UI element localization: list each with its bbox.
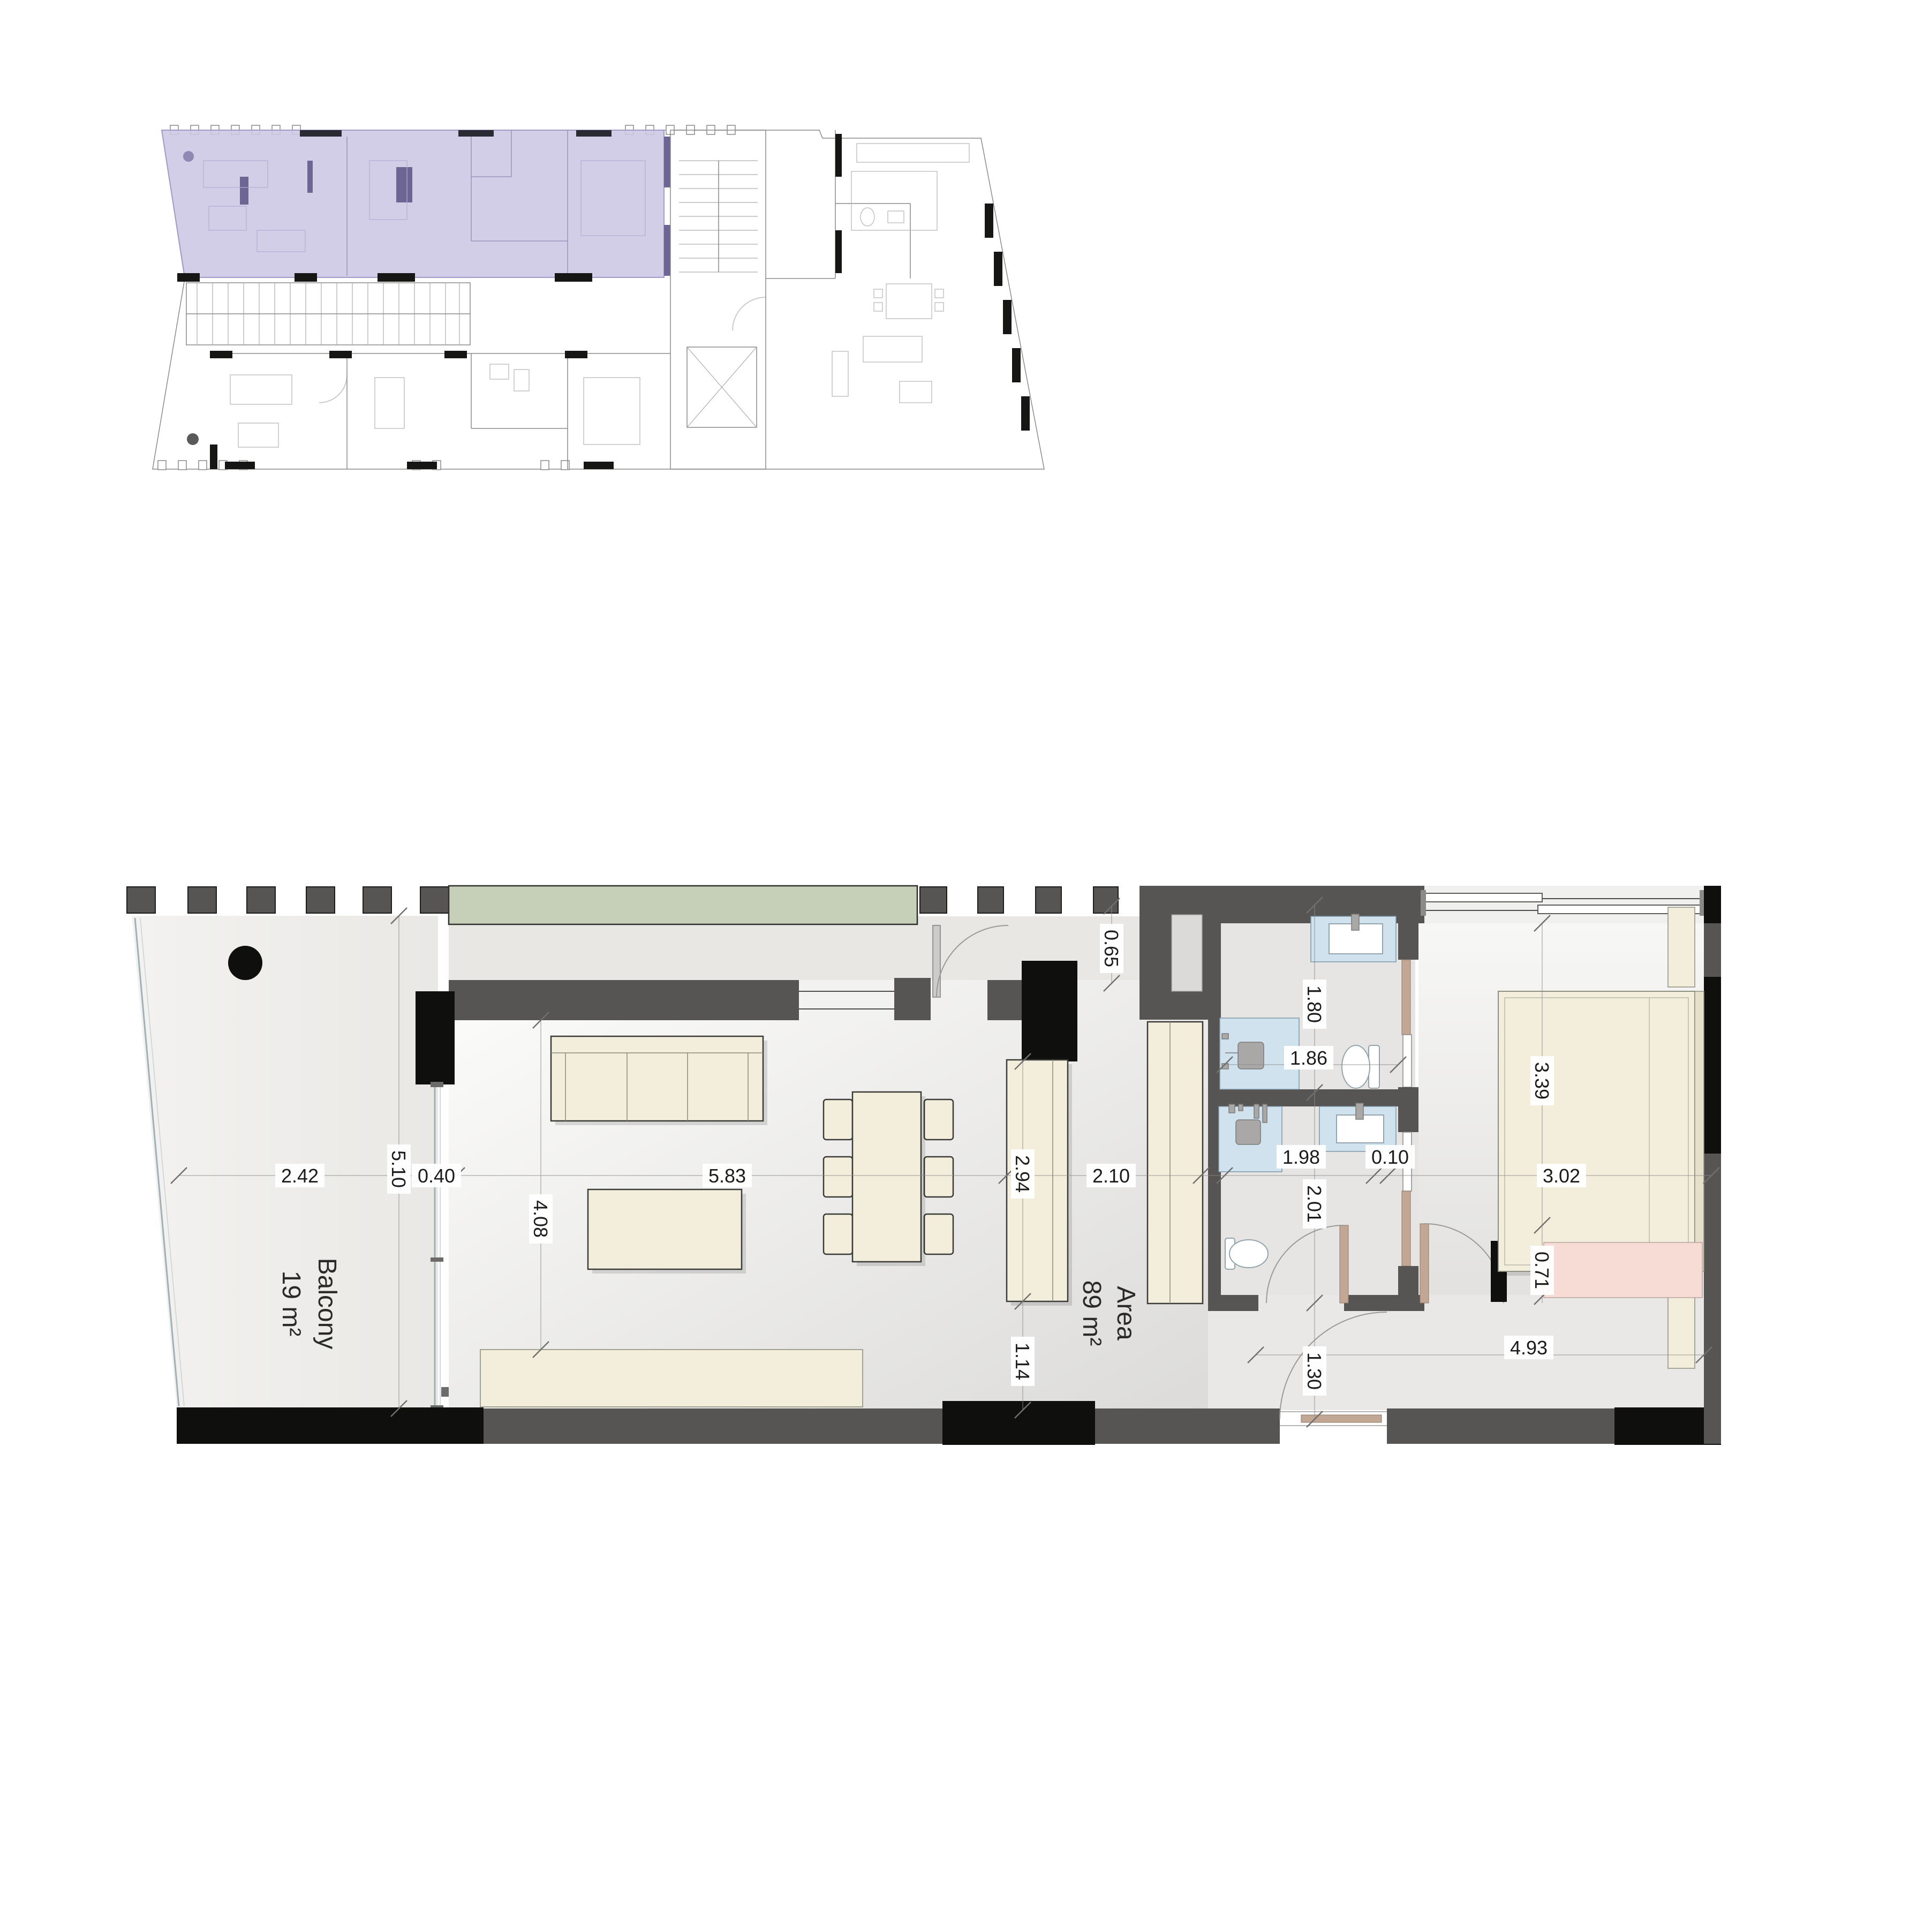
pocket [1403,1035,1412,1087]
svg-text:0.71: 0.71 [1531,1252,1553,1289]
coffee-table [588,1189,746,1274]
dim-label: 5.83 [703,1164,752,1187]
dim-label: 4.93 [1504,1336,1553,1359]
shower-head-icon [1236,1120,1261,1144]
dim-label: 0.10 [1365,1145,1415,1169]
svg-text:Area: Area [1112,1286,1140,1340]
planter [449,886,917,924]
svg-text:1.80: 1.80 [1303,985,1325,1023]
svg-text:2.42: 2.42 [281,1165,319,1187]
svg-text:19 m²: 19 m² [277,1271,305,1337]
svg-text:3.39: 3.39 [1531,1062,1553,1099]
svg-text:1.30: 1.30 [1303,1352,1325,1390]
dim-label: 1.80 [1303,980,1326,1029]
svg-text:3.02: 3.02 [1543,1165,1580,1187]
bedroom-window [1421,886,1705,923]
svg-text:4.93: 4.93 [1510,1337,1548,1359]
dim-label: 0.71 [1530,1246,1554,1295]
svg-text:0.10: 0.10 [1371,1146,1409,1168]
highlighted-unit-overlay [162,130,664,277]
stair-core [670,130,766,469]
column [228,946,262,980]
door-pillar [416,991,455,1084]
overview-key-plan [153,125,1044,470]
dim-label: 0.65 [1100,924,1123,973]
hallway-floor [1208,1295,1704,1410]
svg-text:1.86: 1.86 [1290,1047,1327,1069]
dim-label: 1.30 [1303,1346,1326,1396]
svg-text:5.83: 5.83 [708,1165,746,1187]
column-dot [183,151,194,162]
svg-text:1.14: 1.14 [1012,1343,1033,1380]
right-wall [1704,886,1721,1444]
structural-column [1022,961,1077,1061]
sideboard [480,1350,863,1407]
dim-label: 3.02 [1537,1164,1586,1187]
dim-label: 4.08 [529,1194,553,1244]
dim-label: 5.10 [387,1144,411,1194]
pocket-door [1402,960,1410,1035]
lower-unit [187,351,670,469]
svg-text:89 m²: 89 m² [1077,1280,1106,1346]
dresser [1544,1242,1702,1298]
dim-label: 1.98 [1277,1145,1326,1169]
headboard [1695,991,1704,1271]
dim-label: 1.14 [1011,1337,1035,1386]
sink [1319,1103,1396,1151]
dim-label: 3.39 [1530,1056,1554,1105]
dim-label: 1.86 [1284,1046,1333,1069]
svg-text:0.65: 0.65 [1100,930,1122,967]
svg-text:4.08: 4.08 [530,1200,552,1238]
detail-unit-plan: 2.42 0.40 5.83 2.10 1.86 1.98 0.10 3.02 … [127,886,1721,1445]
svg-text:2.01: 2.01 [1303,1185,1325,1223]
bed [1498,991,1704,1276]
faucet-icon [1352,914,1359,930]
dim-label: 0.40 [412,1164,461,1187]
floor-plan-sheet: 2.42 0.40 5.83 2.10 1.86 1.98 0.10 3.02 … [0,0,1932,1921]
right-unit [733,130,1030,431]
toilet [1342,1045,1379,1088]
dim-label: 2.42 [275,1164,324,1187]
dim-label: 2.01 [1303,1179,1326,1229]
svg-text:1.98: 1.98 [1282,1146,1320,1168]
kitchen-counter [1148,1022,1203,1304]
sofa [551,1036,767,1125]
svg-text:2.10: 2.10 [1092,1165,1130,1187]
svg-text:Balcony: Balcony [313,1258,341,1350]
nightstand [1668,907,1695,987]
wall-niche [1172,915,1202,991]
column-dot [187,433,199,445]
svg-text:2.94: 2.94 [1012,1155,1033,1193]
dim-label: 2.94 [1011,1149,1035,1199]
svg-text:5.10: 5.10 [388,1150,410,1188]
shower [1219,1104,1282,1172]
svg-text:0.40: 0.40 [418,1165,455,1187]
dining-table [824,1092,953,1266]
pocket-door [1402,1191,1410,1266]
elevator-x-icon [687,347,757,427]
sink [1311,914,1396,962]
dim-label: 2.10 [1086,1164,1136,1187]
faucet-icon [1356,1103,1363,1119]
toilet [1225,1238,1268,1269]
window-strip [799,980,894,1020]
exterior-stair [186,283,470,345]
door-handle [441,1387,449,1397]
